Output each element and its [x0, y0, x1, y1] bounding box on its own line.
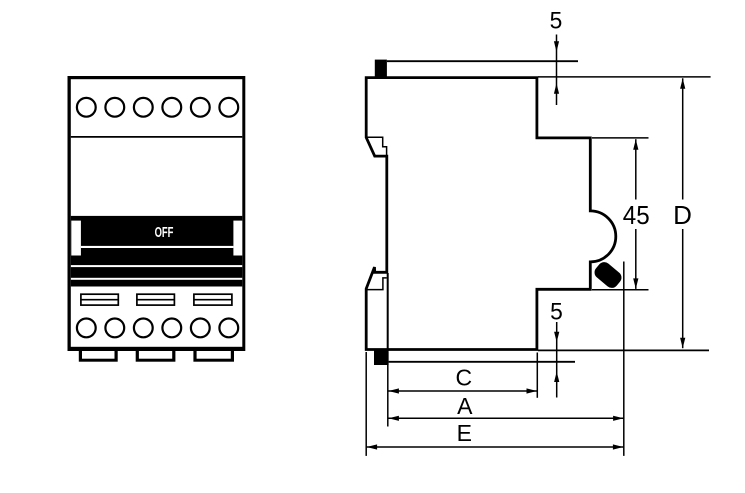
- svg-text:A: A: [457, 393, 473, 419]
- svg-text:OFF: OFF: [155, 224, 174, 241]
- svg-text:45: 45: [623, 201, 650, 230]
- svg-text:E: E: [457, 420, 472, 446]
- svg-text:5: 5: [550, 7, 563, 34]
- svg-text:C: C: [455, 365, 472, 391]
- svg-text:D: D: [673, 200, 692, 230]
- svg-text:5: 5: [550, 298, 563, 325]
